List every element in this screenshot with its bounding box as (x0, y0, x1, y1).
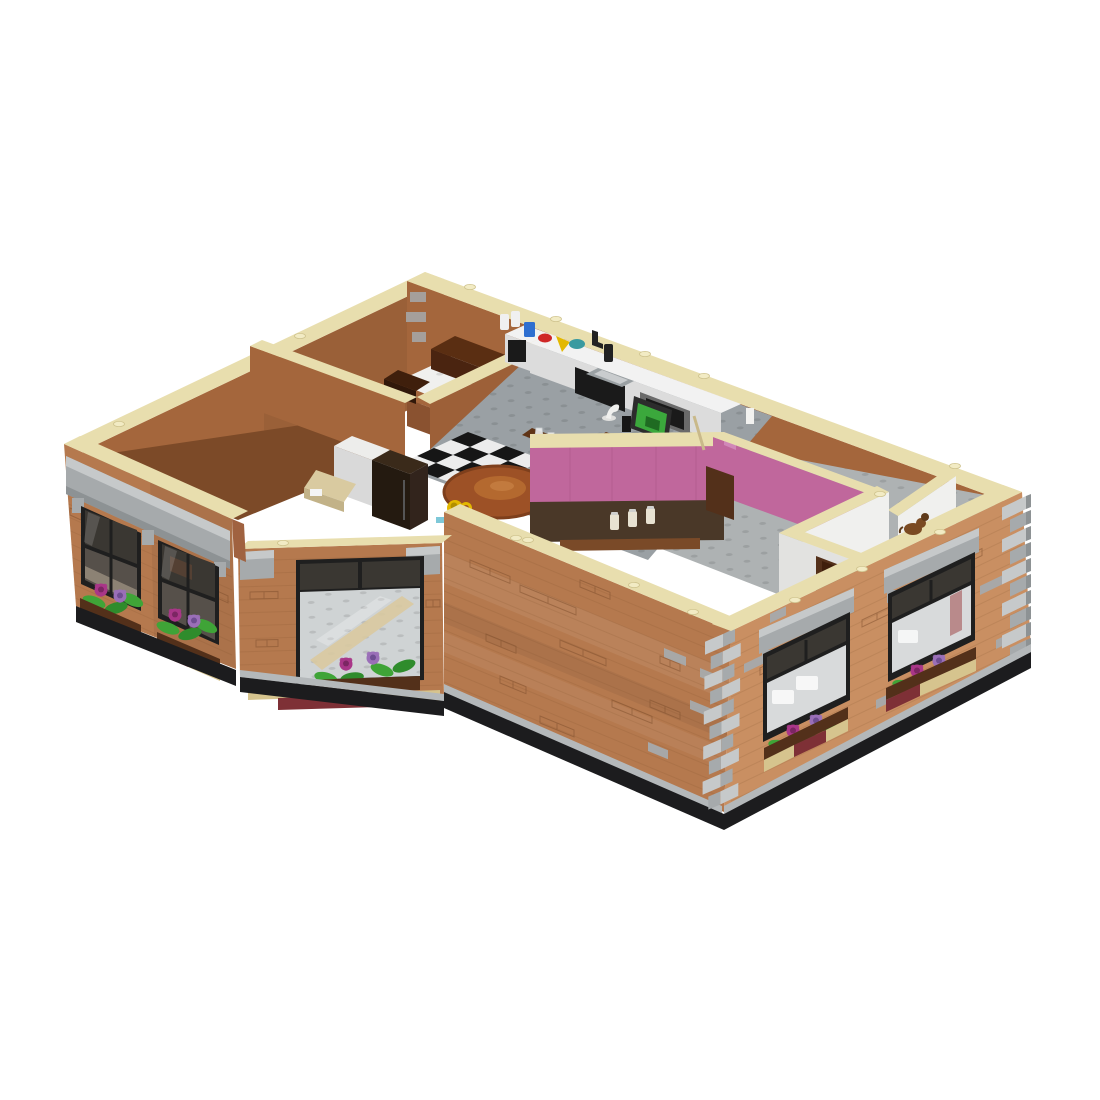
black-cylinder (622, 416, 631, 432)
dishwasher (508, 340, 526, 362)
aqua-piece (436, 517, 445, 523)
white-bottle-on-wall (746, 408, 754, 424)
lego-render-canvas: Isometric 3D render of a LEGO apartment … (0, 0, 1100, 1100)
red-bowl (538, 334, 552, 343)
pink-wall-diagonal (530, 444, 724, 502)
teal-pot (569, 339, 585, 349)
white-bottle (500, 314, 509, 330)
white-bottle (511, 311, 520, 327)
bay-window-wall (238, 535, 452, 716)
hall-shelf (560, 538, 700, 551)
white-phone (310, 489, 322, 496)
blue-canister (524, 322, 535, 337)
red-curtain-glimpse (950, 590, 962, 636)
espresso-maker (604, 344, 613, 362)
lego-apartment-module (0, 0, 1100, 1100)
